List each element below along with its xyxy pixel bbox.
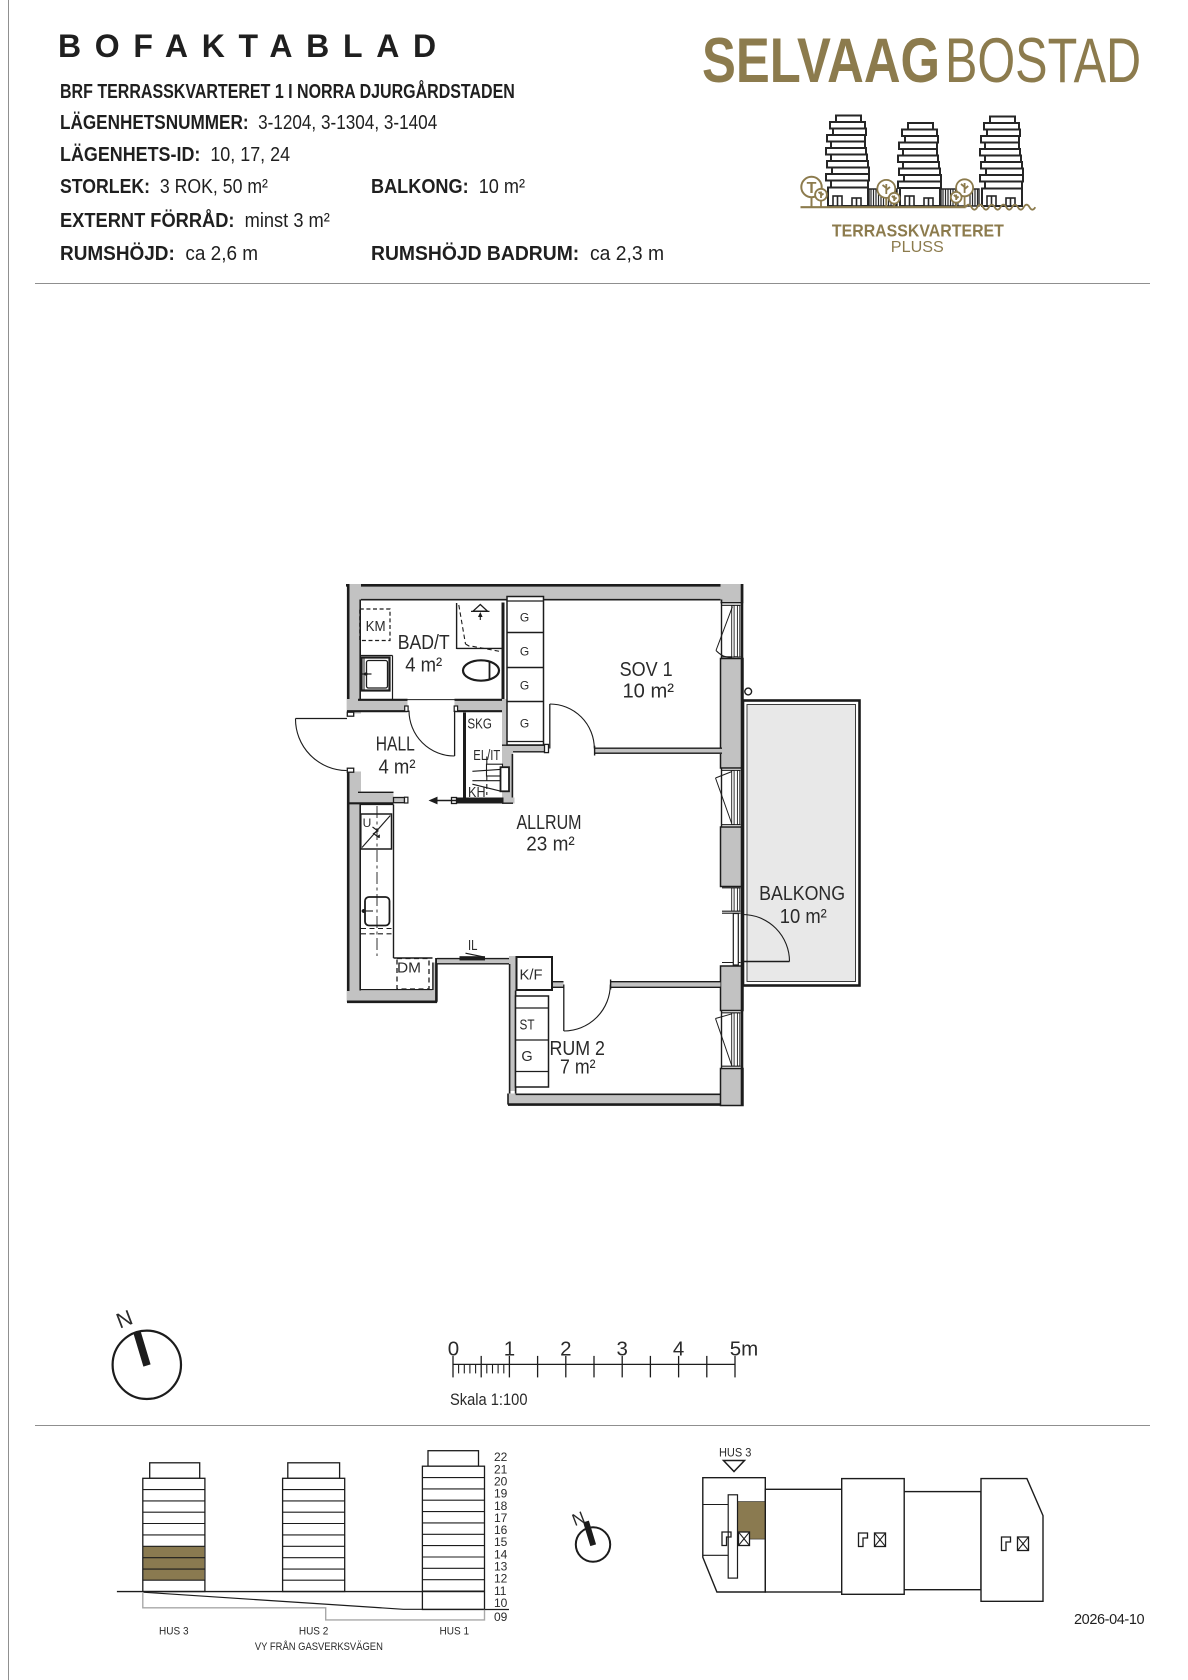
svg-text:ST: ST <box>520 1018 535 1034</box>
svg-text:ALLRUM: ALLRUM <box>517 811 582 834</box>
svg-text:TERRASSKVARTERET: TERRASSKVARTERET <box>832 220 1004 240</box>
svg-text:7 m²: 7 m² <box>560 1056 596 1079</box>
svg-text:3: 3 <box>616 1338 627 1361</box>
svg-text:G: G <box>520 645 529 659</box>
svg-text:HALL: HALL <box>376 733 415 756</box>
svg-text:10 m²: 10 m² <box>780 905 827 928</box>
svg-text:Skala 1:100: Skala 1:100 <box>450 1391 528 1409</box>
svg-text:G: G <box>520 717 529 731</box>
svg-text:0: 0 <box>448 1338 459 1361</box>
svg-text:09: 09 <box>494 1610 508 1624</box>
svg-text:VY FRÅN GASVERKSVÄGEN: VY FRÅN GASVERKSVÄGEN <box>255 1640 383 1653</box>
svg-text:IL: IL <box>468 937 478 954</box>
svg-text:BALKONG: BALKONG <box>759 882 845 905</box>
svg-text:DM: DM <box>397 960 421 977</box>
svg-text:10: 10 <box>494 1596 508 1610</box>
svg-text:HUS 3: HUS 3 <box>719 1448 752 1460</box>
svg-text:10 m²: 10 m² <box>622 680 674 703</box>
svg-text:PLUSS: PLUSS <box>891 239 944 256</box>
svg-text:HUS 3: HUS 3 <box>159 1625 189 1637</box>
svg-text:BAD/T: BAD/T <box>398 631 450 654</box>
svg-text:2: 2 <box>560 1338 571 1361</box>
svg-text:SOV 1: SOV 1 <box>620 658 673 681</box>
svg-text:U: U <box>363 816 372 830</box>
svg-text:1: 1 <box>504 1338 515 1361</box>
svg-text:4 m²: 4 m² <box>405 654 442 677</box>
svg-text:G: G <box>521 1049 532 1065</box>
svg-text:G: G <box>520 679 529 693</box>
svg-text:KM: KM <box>366 618 386 635</box>
svg-text:5m: 5m <box>730 1338 758 1361</box>
svg-text:HUS 2: HUS 2 <box>299 1625 329 1637</box>
svg-text:23 m²: 23 m² <box>526 833 575 856</box>
svg-text:N: N <box>113 1305 136 1333</box>
svg-text:SKG: SKG <box>467 716 492 733</box>
svg-text:4 m²: 4 m² <box>379 756 416 779</box>
svg-text:G: G <box>520 611 529 625</box>
svg-text:4: 4 <box>673 1338 684 1361</box>
svg-text:HUS 1: HUS 1 <box>440 1625 470 1637</box>
svg-text:K/F: K/F <box>520 967 543 984</box>
